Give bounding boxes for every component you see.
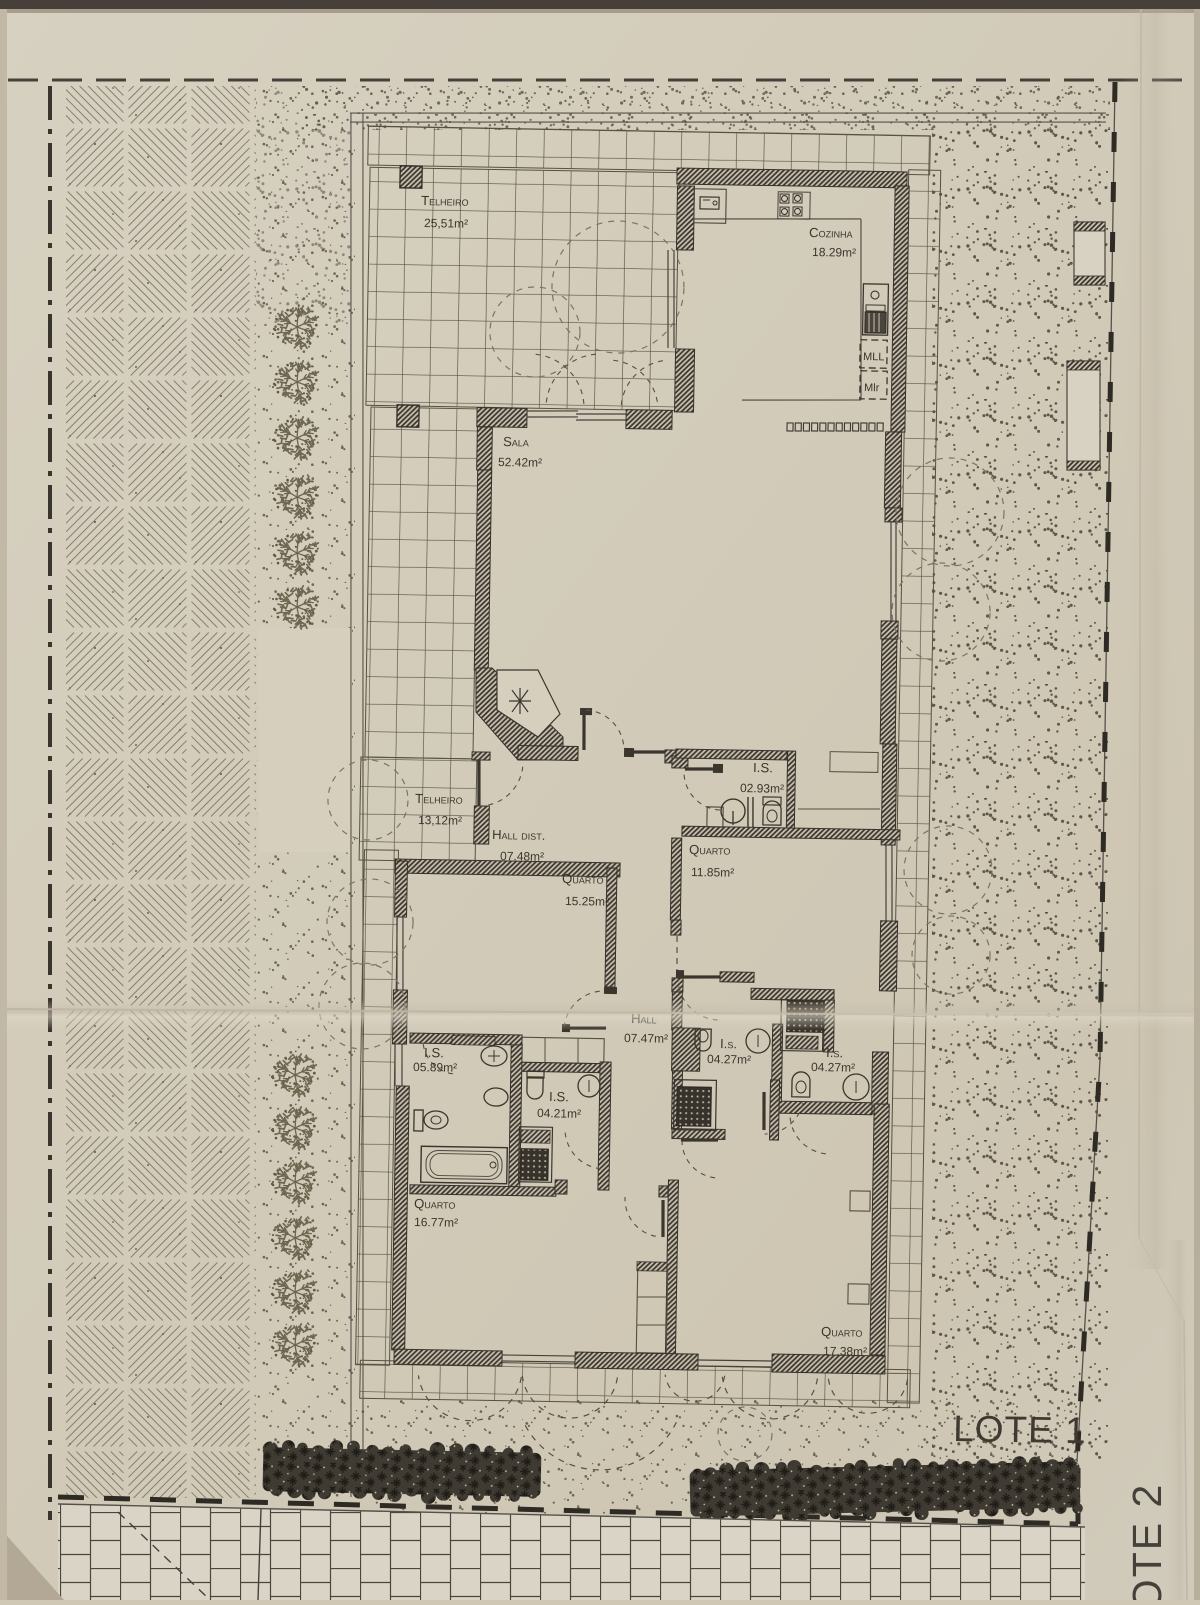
svg-text:Quarto: Quarto [821, 1324, 863, 1340]
svg-text:Quarto: Quarto [414, 1196, 456, 1212]
svg-text:Telheiro: Telheiro [415, 791, 463, 807]
svg-text:I.S.: I.S. [753, 760, 773, 775]
svg-text:I.S.: I.S. [549, 1089, 569, 1104]
svg-text:Hall dist.: Hall dist. [492, 827, 546, 843]
svg-text:16.77m²: 16.77m² [414, 1215, 458, 1230]
svg-text:Mlr: Mlr [864, 382, 880, 394]
svg-text:17.38m²: 17.38m² [823, 1344, 867, 1359]
svg-text:11.85m²: 11.85m² [691, 865, 734, 880]
svg-text:18.29m²: 18.29m² [812, 245, 856, 260]
svg-text:I.S.: I.S. [424, 1045, 444, 1060]
svg-text:04.27m²: 04.27m² [811, 1060, 855, 1075]
svg-text:Quarto: Quarto [689, 842, 731, 858]
svg-text:07.48m²: 07.48m² [500, 849, 544, 864]
svg-text:52.42m²: 52.42m² [498, 455, 542, 470]
svg-text:13,12m²: 13,12m² [418, 813, 462, 828]
svg-text:15.25m²: 15.25m² [565, 894, 609, 909]
svg-text:LOTE 1: LOTE 1 [953, 1408, 1087, 1451]
svg-text:I.s.: I.s. [720, 1036, 737, 1051]
svg-text:05.89m²: 05.89m² [413, 1060, 457, 1075]
svg-text:07.47m²: 07.47m² [624, 1031, 668, 1046]
svg-text:04.21m²: 04.21m² [537, 1106, 581, 1121]
svg-text:Telheiro: Telheiro [421, 193, 469, 209]
svg-text:04.27m²: 04.27m² [707, 1052, 751, 1067]
svg-text:MLL: MLL [863, 351, 885, 363]
svg-text:25,51m²: 25,51m² [424, 216, 468, 231]
svg-text:I.s.: I.s. [826, 1045, 843, 1060]
svg-text:Sala: Sala [503, 434, 529, 449]
svg-text:Cozinha: Cozinha [809, 225, 853, 241]
svg-text:Quarto: Quarto [562, 871, 604, 887]
svg-text:02.93m²: 02.93m² [740, 781, 784, 796]
